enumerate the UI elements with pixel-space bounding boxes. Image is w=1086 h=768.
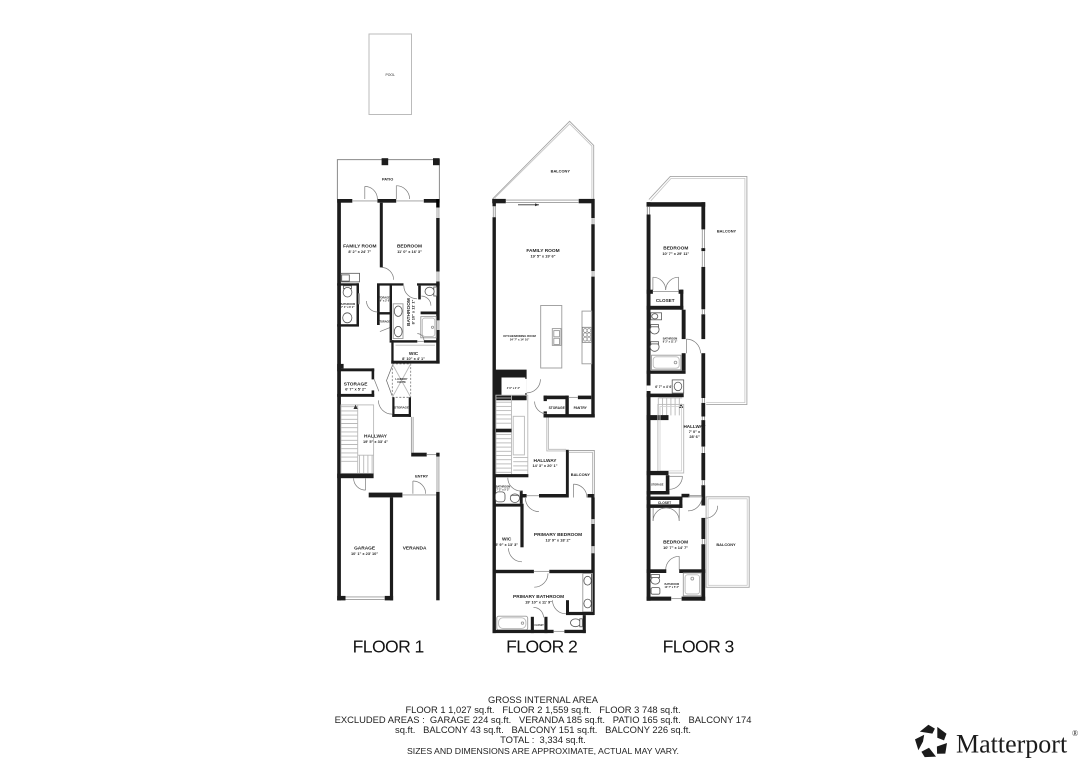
svg-text:CLOSET: CLOSET xyxy=(658,501,671,505)
svg-text:CLOSET: CLOSET xyxy=(534,625,544,627)
svg-text:TOTAL : 3,334 sq.ft.: TOTAL : 3,334 sq.ft. xyxy=(500,734,586,745)
svg-text:6' 7" x 4' 6": 6' 7" x 4' 6" xyxy=(655,385,673,389)
svg-text:CHUTE: CHUTE xyxy=(397,381,406,384)
svg-text:10' 1" x 23' 10": 10' 1" x 23' 10" xyxy=(351,551,378,556)
svg-text:Matterport: Matterport xyxy=(956,730,1068,759)
svg-text:BALCONY: BALCONY xyxy=(571,472,591,477)
svg-text:8' 10" x 4' 1": 8' 10" x 4' 1" xyxy=(402,356,425,361)
svg-text:PANTRY: PANTRY xyxy=(574,406,588,410)
svg-text:3' 9" x 2' 0": 3' 9" x 2' 0" xyxy=(377,299,391,302)
svg-text:19' 10" x 11' 9": 19' 10" x 11' 9" xyxy=(525,600,552,605)
svg-text:CLOSET: CLOSET xyxy=(656,298,675,303)
svg-text:10' 7" x 14' 7": 10' 7" x 14' 7" xyxy=(663,545,688,550)
svg-text:8' 2" x 24' 7": 8' 2" x 24' 7" xyxy=(348,249,371,254)
svg-text:®: ® xyxy=(1072,729,1078,738)
svg-text:11' 0" x 16' 3": 11' 0" x 16' 3" xyxy=(397,249,422,254)
svg-text:6' 7" x 5' 2": 6' 7" x 5' 2" xyxy=(345,387,366,392)
svg-text:FLOOR 1: FLOOR 1 xyxy=(353,637,424,657)
svg-text:28' 6": 28' 6" xyxy=(689,434,699,439)
svg-text:POOL: POOL xyxy=(385,73,395,77)
svg-text:8' 10" x 11' 1": 8' 10" x 11' 1" xyxy=(411,299,416,324)
svg-text:SIZES AND DIMENSIONS ARE APPRO: SIZES AND DIMENSIONS ARE APPROXIMATE, AC… xyxy=(407,746,679,756)
svg-text:ENTRY: ENTRY xyxy=(415,474,428,479)
svg-text:STORAGE: STORAGE xyxy=(394,406,409,410)
svg-text:10' 7" x 29' 11": 10' 7" x 29' 11" xyxy=(662,251,689,256)
svg-text:BALCONY: BALCONY xyxy=(716,542,736,547)
svg-text:FLOOR 2: FLOOR 2 xyxy=(506,637,577,657)
svg-text:BALCONY: BALCONY xyxy=(717,229,737,234)
svg-text:FLOOR 3: FLOOR 3 xyxy=(663,637,735,657)
svg-text:8' 2" x 11' 2": 8' 2" x 11' 2" xyxy=(663,341,678,344)
svg-text:BALCONY: BALCONY xyxy=(551,169,571,174)
svg-text:VERANDA: VERANDA xyxy=(403,546,427,552)
svg-text:10' 7" x 5' 3": 10' 7" x 5' 3" xyxy=(664,586,679,589)
svg-text:7' 4" x 8' 2": 7' 4" x 8' 2" xyxy=(341,306,355,309)
svg-text:5' 9" x 13' 3": 5' 9" x 13' 3" xyxy=(495,542,518,547)
svg-text:4' 8" x 2' 3": 4' 8" x 2' 3" xyxy=(507,387,521,390)
svg-text:13' 9" x 18' 2": 13' 9" x 18' 2" xyxy=(545,538,570,543)
svg-text:19' 5" x 33' 4": 19' 5" x 33' 4" xyxy=(363,439,388,444)
svg-text:24' 7" x 14' 10": 24' 7" x 14' 10" xyxy=(510,338,530,342)
svg-text:19' 5" x 19' 6": 19' 5" x 19' 6" xyxy=(530,253,555,258)
svg-text:7' 2" x 5' 2": 7' 2" x 5' 2" xyxy=(496,488,510,491)
svg-text:STORAGE: STORAGE xyxy=(651,484,664,487)
svg-text:STORAGE: STORAGE xyxy=(378,320,391,323)
svg-text:STORAGE: STORAGE xyxy=(549,406,566,410)
svg-text:PATIO: PATIO xyxy=(382,177,393,182)
svg-text:14' 3" x 20' 1": 14' 3" x 20' 1" xyxy=(532,463,557,468)
